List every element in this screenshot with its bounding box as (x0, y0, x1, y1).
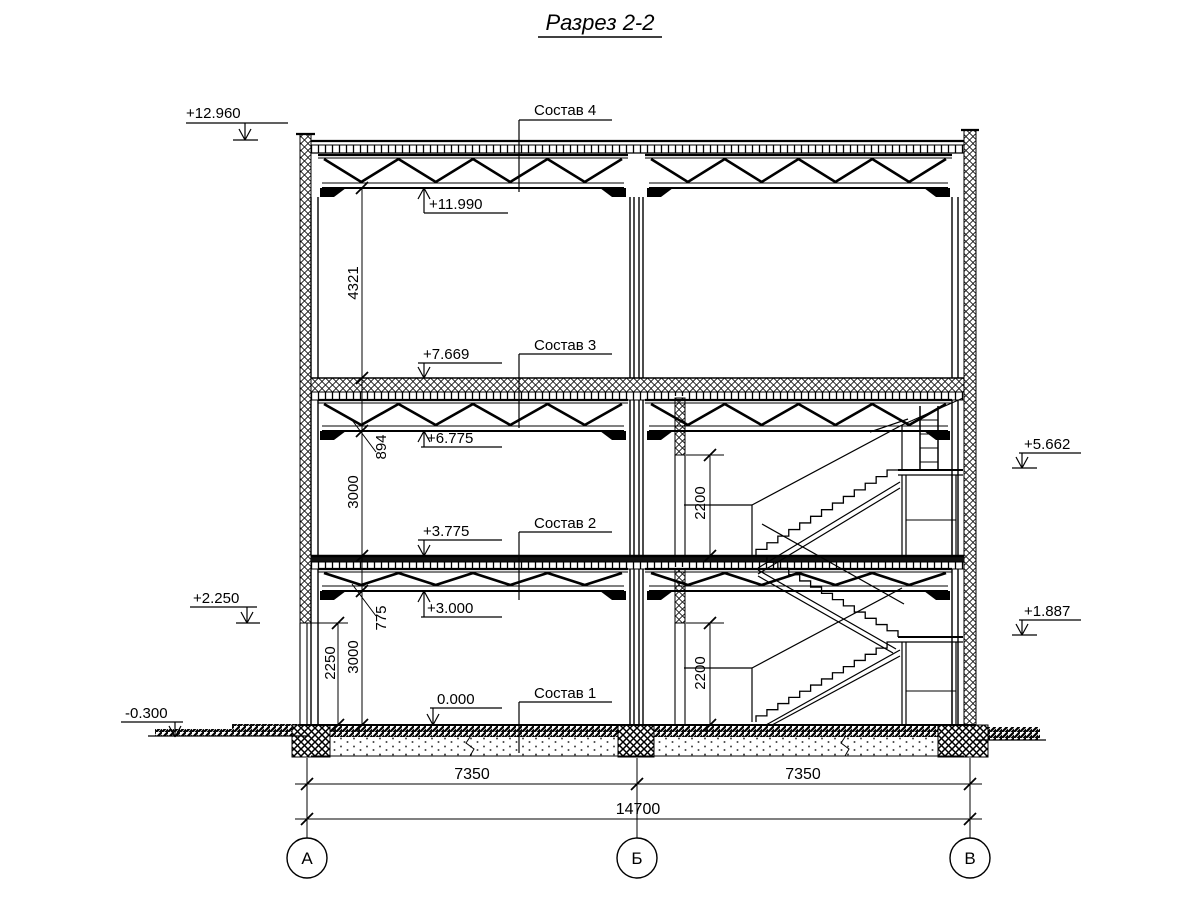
elevation-ground-floor: 0.000 (437, 691, 475, 708)
drawing-title: Разрез 2-2 (545, 10, 654, 35)
left-apron-step (155, 729, 233, 736)
axis-label-v: В (964, 849, 975, 868)
foundation-middle (618, 725, 654, 757)
dim-floor2-depth: 775 (373, 605, 390, 630)
dim-storey1-height: 3000 (345, 640, 362, 673)
elevation-parapet: +12.960 (186, 105, 241, 122)
dim-floor3-depth: 894 (373, 434, 390, 459)
dim-span-left: 7350 (454, 766, 490, 783)
elevation-floor3-top: +7.669 (423, 346, 469, 363)
dim-panel-height: 2250 (322, 646, 339, 679)
section-drawing: А Б В Разрез 2-2 +12.960 +11.990 +7.669 … (0, 0, 1200, 900)
axis-label-a: А (301, 849, 313, 868)
layer-label-floor3: Состав 3 (534, 337, 596, 354)
dim-opening-lower: 2200 (692, 656, 709, 689)
section-drawing-sheet: А Б В Разрез 2-2 +12.960 +11.990 +7.669 … (0, 0, 1200, 900)
elevation-landing-lower: +1.887 (1024, 603, 1070, 620)
grid-axes: А Б В (287, 838, 990, 878)
elevation-floor2-truss-bottom: +3.000 (427, 600, 473, 617)
foundation-left (292, 725, 330, 757)
foundation-right (938, 725, 988, 757)
elevation-floor3-truss-bottom: +6.775 (427, 430, 473, 447)
dim-opening-upper: 2200 (692, 486, 709, 519)
roof-deck (311, 145, 964, 153)
floor3-slab (311, 378, 964, 392)
partition-lower (675, 569, 685, 623)
dim-storey2-height: 3000 (345, 475, 362, 508)
layer-label-floor2: Состав 2 (534, 515, 596, 532)
walls-and-slabs (155, 130, 1040, 757)
elevation-outside-ground: -0.300 (125, 705, 168, 722)
elevation-panel-bottom: +2.250 (193, 590, 239, 607)
right-wall-panel (964, 130, 976, 730)
dim-roof-clearance: 4321 (345, 266, 362, 299)
elevation-floor2-top: +3.775 (423, 523, 469, 540)
layer-label-floor1: Состав 1 (534, 685, 596, 702)
structure-linework (121, 37, 1081, 838)
axis-label-b: Б (631, 849, 642, 868)
layer-label-roof: Состав 4 (534, 102, 596, 119)
dim-span-right: 7350 (785, 766, 821, 783)
dim-total: 14700 (616, 801, 661, 818)
left-wall-panel (300, 134, 311, 623)
left-apron (232, 724, 300, 736)
elevation-landing-upper: +5.662 (1024, 436, 1070, 453)
floor3-deck (311, 392, 964, 400)
elevation-roof-truss-bottom: +11.990 (429, 196, 483, 213)
